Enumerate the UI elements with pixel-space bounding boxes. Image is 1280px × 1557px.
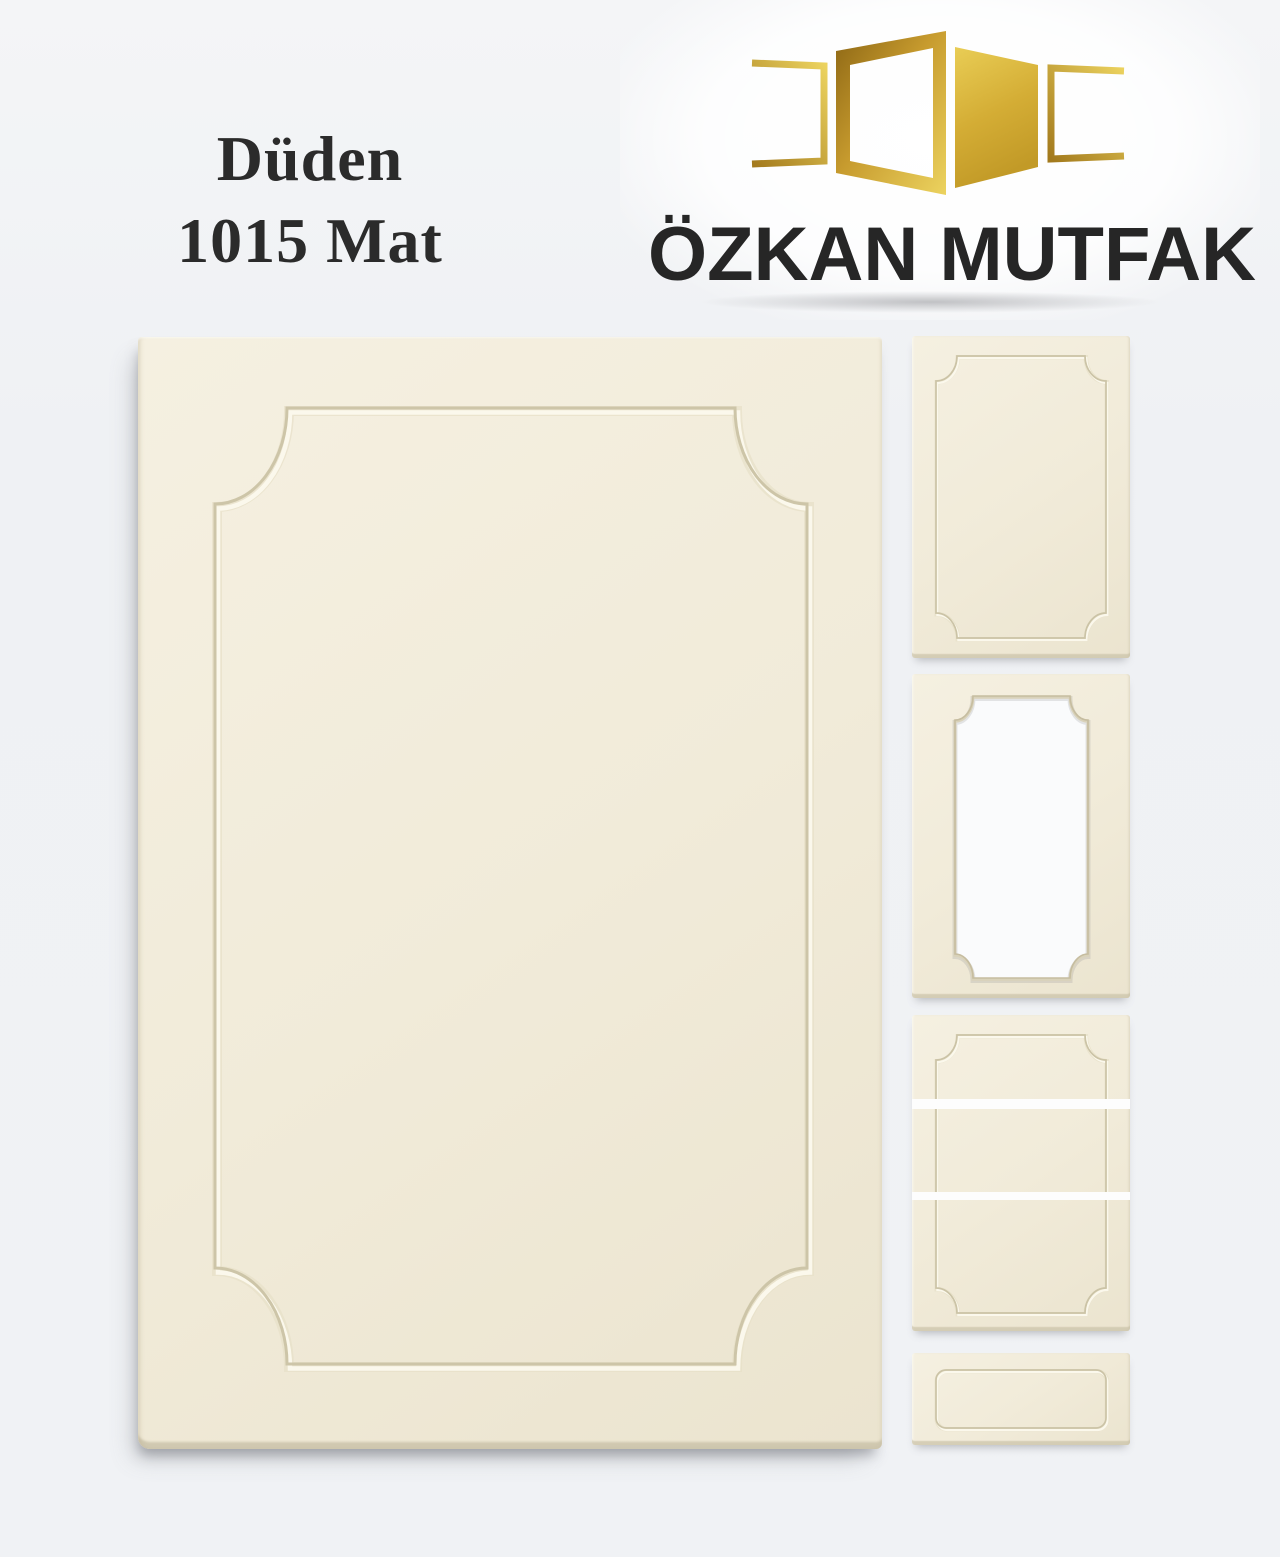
logo-shadow — [700, 291, 1160, 313]
thumbnail-drawer-front[interactable] — [912, 1353, 1130, 1445]
segment-gap — [912, 1192, 1130, 1200]
segment-gap — [912, 1099, 1130, 1109]
glass-opening — [912, 674, 1130, 998]
product-image: Düden 1015 Mat — [0, 0, 1280, 1557]
logo-open-door-frame — [836, 31, 946, 195]
thumbnail-full-door[interactable] — [912, 336, 1130, 658]
golden-open-doors-icon — [750, 25, 1126, 197]
thumbnail-door-groove — [912, 336, 1130, 658]
logo-right-bracket — [1051, 68, 1124, 159]
brand-name: ÖZKAN MUTFAK — [640, 212, 1264, 298]
product-title: Düden 1015 Mat — [100, 118, 520, 282]
logo-solid-door — [955, 47, 1038, 188]
thumbnail-glass-frame-door[interactable] — [912, 674, 1130, 998]
tall-door-groove — [912, 1015, 1130, 1331]
product-title-line2: 1015 Mat — [100, 200, 520, 282]
logo-left-bracket — [752, 63, 824, 164]
thumbnail-tall-door-segments[interactable] — [912, 1015, 1130, 1331]
main-door-groove — [138, 337, 882, 1449]
drawer-groove — [912, 1353, 1130, 1445]
product-title-line1: Düden — [100, 118, 520, 200]
main-door-preview — [138, 337, 882, 1449]
